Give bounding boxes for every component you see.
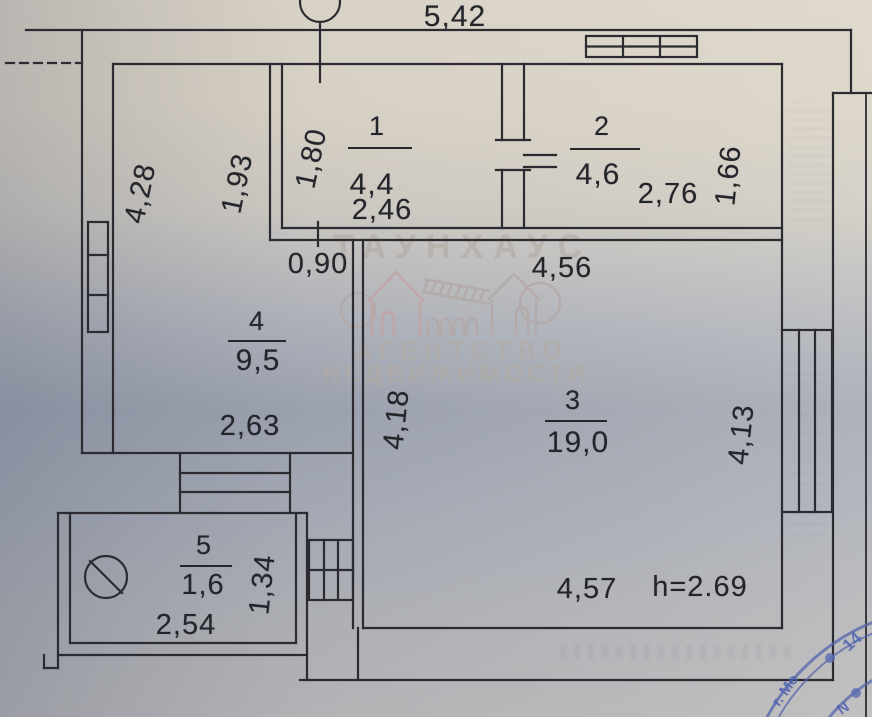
- room1-number: 1: [357, 113, 397, 140]
- stamp-dot: [851, 688, 861, 698]
- room4-door-dim: 0,90: [273, 250, 363, 279]
- right-wall-window: [782, 330, 832, 512]
- vent-stack: [300, 0, 340, 82]
- room2-number: 2: [582, 113, 622, 140]
- room2-fraction-line: [570, 148, 640, 150]
- room3-bottom-dim: 4,57: [542, 575, 632, 604]
- room4-area: 9,5: [218, 346, 298, 376]
- room1-width-dim: 2,46: [337, 196, 427, 225]
- room5-number: 5: [184, 532, 224, 559]
- room1-fraction-line: [348, 147, 412, 149]
- top-wall-window: [586, 36, 697, 57]
- floorplan-photo: ТАУНХАУС: [0, 0, 872, 717]
- stamp-dot: [825, 653, 835, 663]
- room3-ceiling-height: h=2.69: [645, 573, 755, 602]
- stairs-symbol: [180, 453, 290, 513]
- room5-area: 1,6: [163, 571, 243, 600]
- room2-width-dim: 2,76: [623, 180, 713, 209]
- room4-fraction-line: [228, 340, 286, 342]
- outer-walls: [6, 30, 872, 717]
- floor-plan-drawing: [0, 0, 872, 717]
- room3-number: 3: [553, 387, 593, 414]
- room4-room3-divider-wall: [353, 240, 363, 680]
- washbasin-symbol: [85, 556, 127, 598]
- top-width-dim: 5,42: [410, 2, 500, 32]
- room3-area: 19,0: [528, 428, 628, 458]
- room3-top-dim: 4,56: [517, 254, 607, 283]
- room4-bottom-dim: 2,63: [205, 412, 295, 441]
- ladder-symbol: [309, 540, 353, 600]
- left-wall-window: [88, 222, 108, 332]
- room4-number: 4: [237, 308, 277, 335]
- room3-fraction-line: [545, 420, 607, 422]
- hall-wall-band: [270, 222, 782, 246]
- room5-bottom-dim: 2,54: [141, 611, 231, 640]
- room5-fraction-line: [180, 565, 232, 567]
